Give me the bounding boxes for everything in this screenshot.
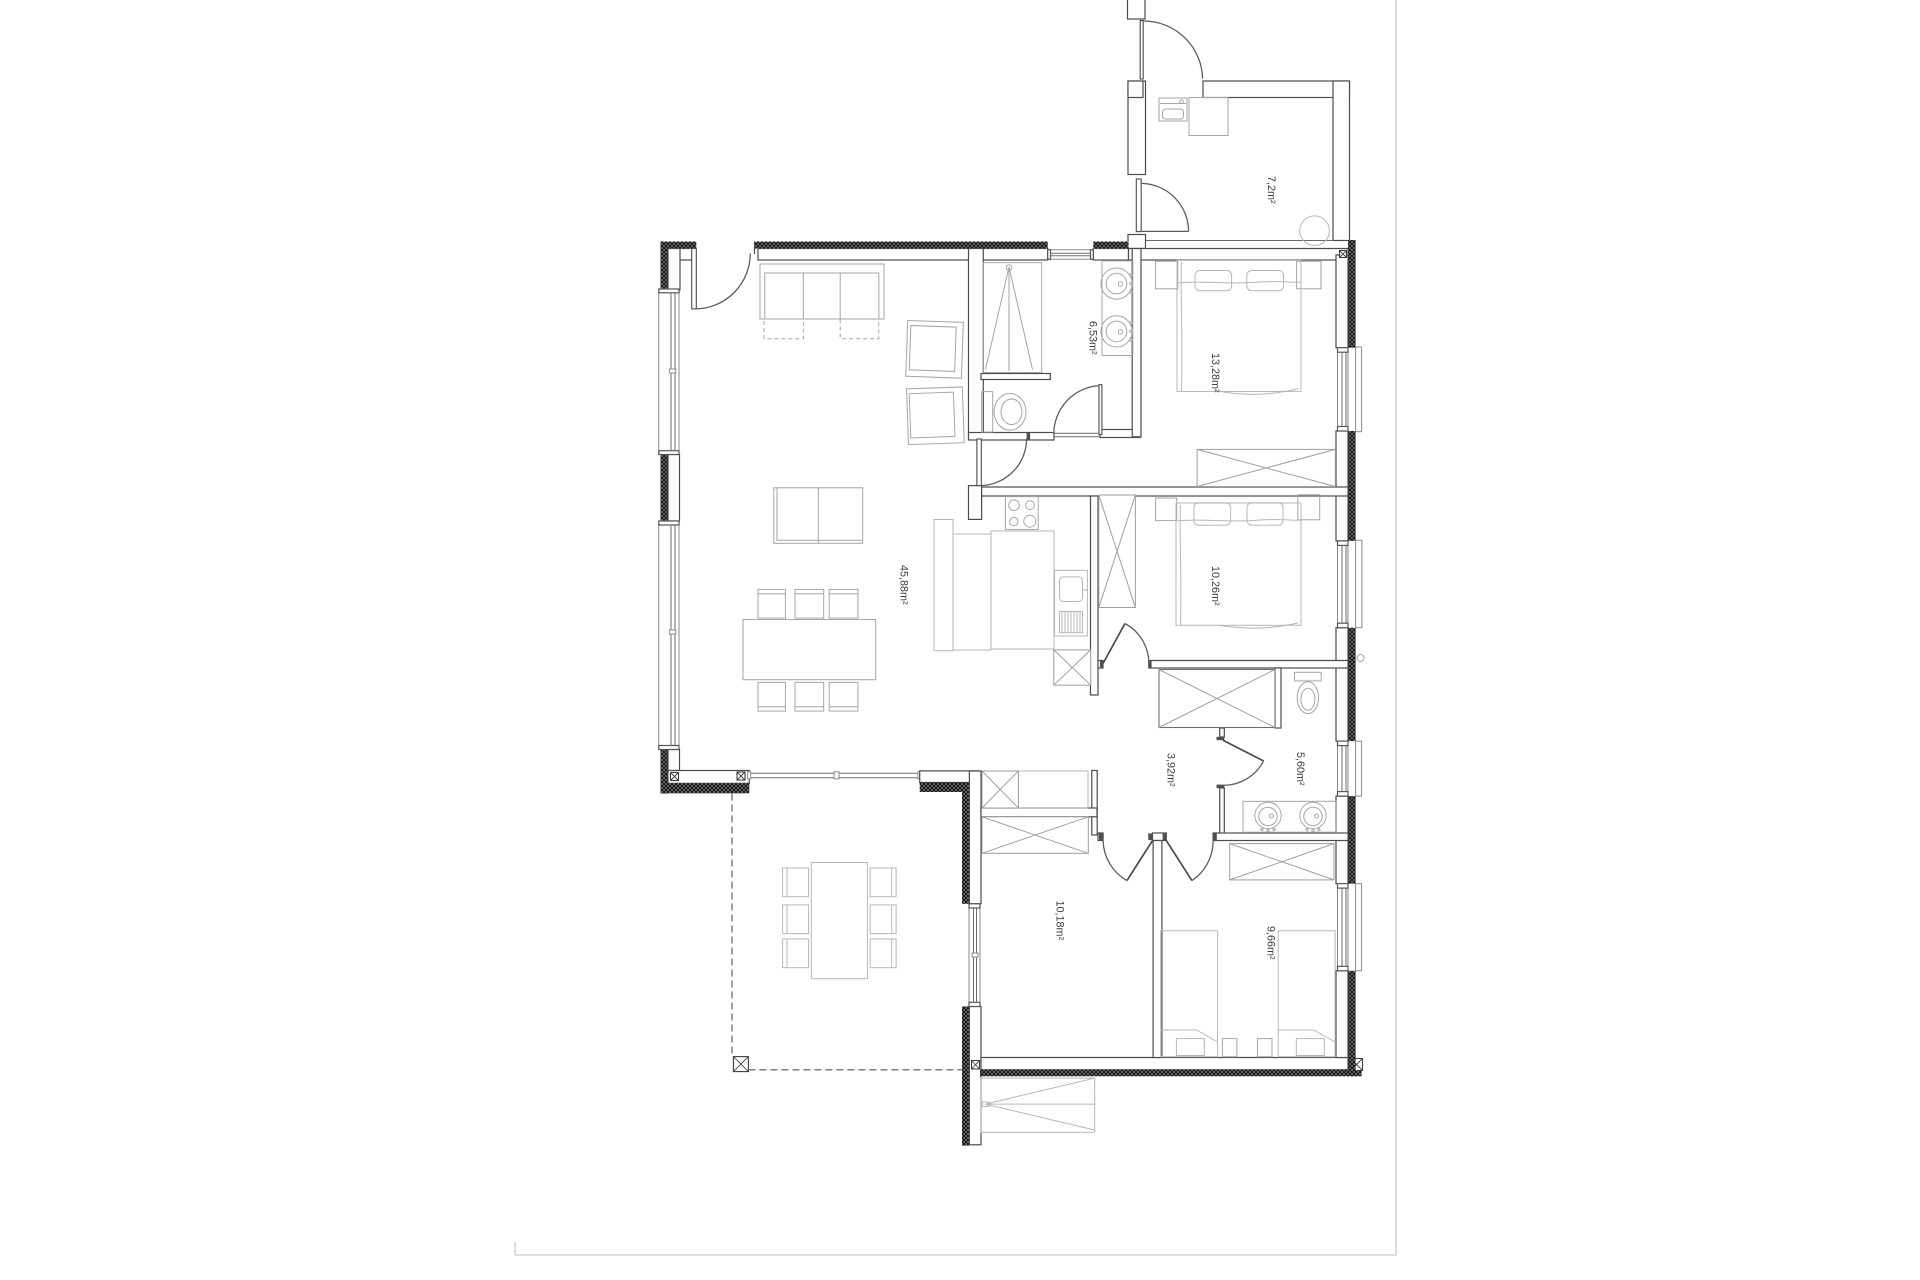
svg-text:5,60m²: 5,60m² <box>1294 752 1306 786</box>
svg-text:45,88m²: 45,88m² <box>897 565 909 605</box>
svg-text:7,2m²: 7,2m² <box>1265 176 1277 204</box>
svg-text:3,92m²: 3,92m² <box>1164 753 1176 787</box>
svg-text:9,66m²: 9,66m² <box>1264 926 1276 960</box>
svg-text:13,28m²: 13,28m² <box>1209 353 1221 393</box>
svg-text:10,18m²: 10,18m² <box>1054 901 1066 941</box>
svg-text:6,53m²: 6,53m² <box>1086 321 1098 355</box>
svg-text:10,26m²: 10,26m² <box>1209 566 1221 606</box>
